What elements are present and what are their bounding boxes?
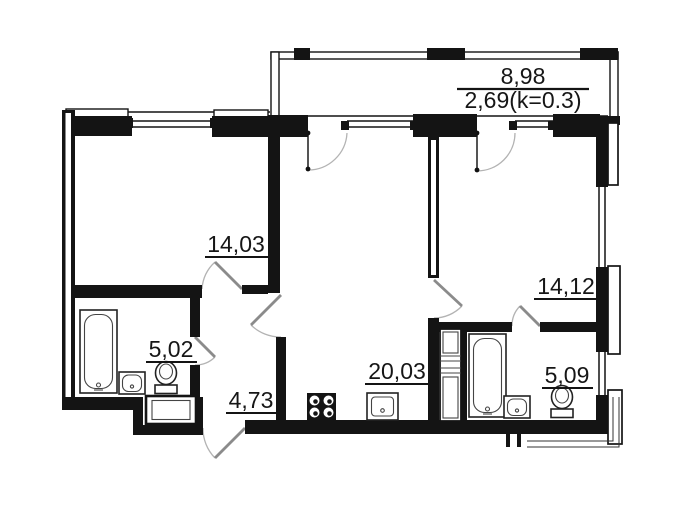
toilet-left (155, 362, 177, 394)
hallway-area-label: 4,73 (226, 387, 277, 413)
stove (307, 393, 336, 420)
toilet-right (551, 386, 573, 418)
parapet-pier (580, 48, 618, 60)
kitchen-living-area-label: 20,03 (365, 358, 429, 384)
balcony-area-total: 8,98 (501, 63, 546, 89)
bathroom-left-area-label: 5,02 (146, 336, 197, 362)
bedroom-left-area-label: 14,03 (205, 231, 268, 257)
bathroom-right-area-label: 5,09 (542, 362, 593, 388)
bathtub-right (469, 334, 506, 417)
svg-text:4,73: 4,73 (229, 387, 274, 413)
bedroom-right-area-label: 14,12 (534, 273, 597, 299)
bathtub-left (80, 310, 117, 393)
svg-text:14,12: 14,12 (537, 273, 595, 299)
kitchen-sink (367, 393, 398, 420)
svg-text:5,02: 5,02 (149, 336, 194, 362)
parapet-pier (294, 48, 310, 60)
svg-text:5,09: 5,09 (545, 362, 590, 388)
sink-left (119, 372, 145, 394)
wardrobe (440, 329, 461, 421)
svg-text:14,03: 14,03 (207, 231, 265, 257)
floor-plan: 8,98 2,69(k=0.3) 14,03 5,02 4,73 20,03 1… (0, 0, 683, 508)
washing-machine (146, 396, 196, 424)
floor-plan-svg: 8,98 2,69(k=0.3) 14,03 5,02 4,73 20,03 1… (0, 0, 683, 508)
balcony-area-reduced: 2,69(k=0.3) (465, 87, 582, 113)
svg-text:20,03: 20,03 (368, 358, 426, 384)
parapet-pier (427, 48, 465, 60)
sink-right (504, 396, 530, 418)
